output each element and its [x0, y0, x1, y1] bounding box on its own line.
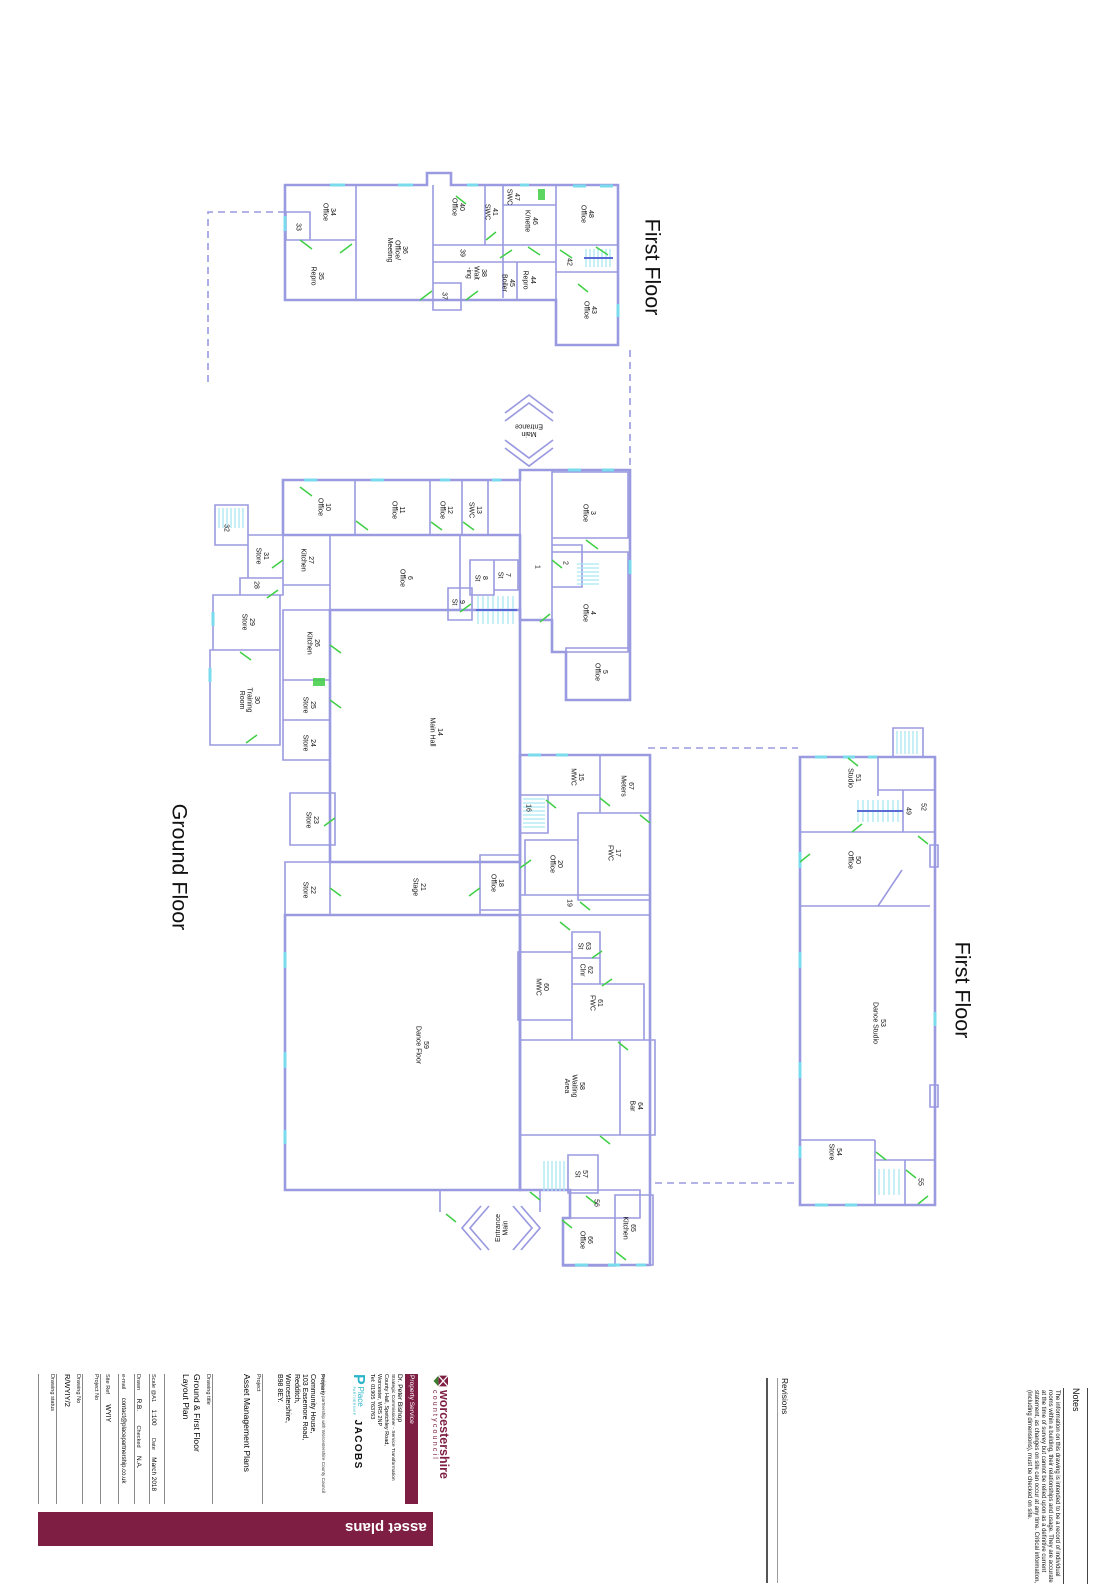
label-line: 7	[504, 573, 511, 577]
plan-geometry	[283, 470, 630, 700]
plan-geometry	[210, 505, 518, 745]
label-line: Clnr	[579, 964, 586, 978]
label-line: 44	[529, 276, 536, 284]
label-line: Boiler	[501, 274, 508, 293]
label-line: Repro	[522, 270, 529, 289]
fixtures-layer	[313, 189, 545, 686]
room-label-3: 3Office	[582, 504, 597, 522]
notes-title: Notes	[1071, 1388, 1081, 1412]
room-label-17: 17FWC	[607, 845, 622, 861]
label-line: 28	[252, 581, 259, 589]
room-label-12: 12Office	[439, 501, 454, 519]
plan-geometry	[283, 470, 630, 700]
room-labels-layer: 34Office3335Repro36Office/Meeting40Offic…	[168, 189, 975, 1249]
room-label-7: 7St	[497, 572, 512, 579]
label-line: 22	[309, 886, 316, 894]
label-line: Office	[583, 301, 590, 319]
floor-title-2: First Floor	[951, 942, 975, 1039]
plan-geometry	[520, 755, 650, 1265]
room-label-18: 18Office	[490, 874, 505, 892]
partnership-note: working in partnership with Worcestershi…	[321, 1374, 326, 1493]
room-label-37: 37	[440, 292, 447, 300]
room-label-58: 58WaitingArea	[563, 1074, 585, 1097]
stairs-layer	[219, 249, 917, 1195]
label-line: Office	[847, 851, 854, 869]
contact-role: Strategic Commissioner - Service Transfo…	[390, 1374, 395, 1504]
room-label-67: 67Meters	[620, 775, 635, 797]
label-line: Office	[322, 203, 329, 221]
label-line: 34	[329, 208, 336, 216]
asset-plans-banner: asset plans	[38, 1512, 433, 1546]
room-label-28: 28	[252, 581, 259, 589]
label-line: SWC	[484, 204, 491, 220]
label-line: Room	[238, 691, 245, 710]
drawing-no-value: R/WYIY/2	[63, 1374, 72, 1504]
label-line: 43	[590, 306, 597, 314]
label-line: St	[451, 599, 458, 606]
label-line: St	[474, 575, 481, 582]
label-line: 30	[253, 696, 260, 704]
label-line: 67	[627, 782, 634, 790]
label-line: 8	[481, 576, 488, 580]
contact-address: Worcester, WR5 2NP	[376, 1374, 382, 1504]
label-line: Store	[241, 614, 248, 631]
room-label-11: 11Office	[391, 501, 406, 519]
label-line: 46	[531, 217, 538, 225]
asset-plans-label: asset plans	[345, 1519, 427, 1536]
label-line: 31	[262, 552, 269, 560]
plan-geometry	[577, 564, 599, 584]
label-line: MWC	[570, 768, 577, 786]
label-line: Office/	[393, 240, 400, 260]
plan-geometry	[544, 1161, 564, 1191]
notes-rule	[1063, 1388, 1064, 1584]
room-label-57: 57St	[574, 1170, 589, 1178]
floor-title-1: Ground Floor	[168, 804, 192, 931]
room-label-35: 35Repro	[310, 266, 325, 285]
plan-geometry	[476, 258, 903, 811]
label-line: Ground Floor	[168, 804, 192, 931]
room-label-65: 65Kitchen	[622, 1216, 637, 1239]
label-line: 57	[581, 1170, 588, 1178]
label-line: Entrance	[515, 423, 543, 430]
label-line: 26	[313, 639, 320, 647]
label-line: 55	[916, 1178, 923, 1186]
plan-geometry	[208, 212, 798, 1183]
room-label-5: 5Office	[594, 663, 609, 681]
label-line: 59	[422, 1041, 429, 1049]
label-line: Office	[549, 855, 556, 873]
room-label-24: 24Store	[302, 735, 317, 752]
scale-value: 1:100	[150, 1410, 157, 1426]
notes-rule	[1087, 1388, 1088, 1584]
room-label-36: 36Office/Meeting	[386, 238, 408, 263]
drawing-title-value: Ground & First Floor	[192, 1374, 202, 1504]
room-label-2: 2	[561, 561, 568, 565]
label-line: 25	[309, 701, 316, 709]
label-line: Kitchen	[306, 631, 313, 654]
room-label-21: 21Stage	[412, 878, 427, 896]
label-line: 36	[401, 246, 408, 254]
label-line: 62	[586, 966, 593, 974]
label-line: 65	[629, 1224, 636, 1232]
label-line: 66	[586, 1236, 593, 1244]
room-label-10: 10Office	[317, 498, 332, 516]
label-line: 29	[248, 618, 255, 626]
plan-geometry	[879, 1169, 899, 1195]
room-label-52: 52	[919, 803, 926, 811]
field-project: Project Asset Management Plans	[212, 1374, 263, 1504]
label-line: 27	[307, 556, 314, 564]
label-line: 23	[312, 816, 319, 824]
label-line: 10	[324, 503, 331, 511]
room-label-34: 34Office	[322, 203, 337, 221]
field-drawing-title: Drawing title Ground & First Floor Layou…	[164, 1374, 213, 1504]
label-line: St	[577, 943, 584, 950]
floor-title-0: First Floor	[641, 219, 665, 316]
label-line: 45	[508, 279, 515, 287]
room-label-15: 15MWC	[570, 768, 585, 786]
room-label-38: 38Wait-ing	[465, 266, 487, 280]
field-drawing-no: Drawing No R/WYIY/2	[56, 1374, 83, 1504]
label-line: 4	[589, 611, 596, 615]
label-line: 24	[309, 739, 316, 747]
windows-layer	[210, 185, 935, 1265]
room-label-54: 54Store	[828, 1144, 843, 1161]
room-label-26: 26Kitchen	[306, 631, 321, 654]
label-line: Office	[580, 205, 587, 223]
label-line: Main Hall	[429, 717, 436, 747]
label-line: MWC	[535, 978, 542, 996]
label-line: Training	[245, 687, 252, 712]
label-line: 39	[458, 249, 465, 257]
label-line: 1	[533, 565, 540, 569]
label-line: 38	[480, 269, 487, 277]
label-line: 14	[436, 728, 443, 736]
label-line: 37	[440, 292, 447, 300]
room-label-22: 22Store	[302, 882, 317, 899]
label-line: -ing	[465, 267, 472, 279]
contact-name: Dr. Peter Bishop	[396, 1374, 403, 1504]
label-line: 52	[919, 803, 926, 811]
label-line: Bar	[629, 1101, 636, 1113]
field-label: Checked	[135, 1426, 141, 1448]
room-label-42: 42	[565, 258, 572, 266]
label-line: Repro	[310, 266, 317, 285]
room-label-55: 55	[916, 1178, 923, 1186]
label-line: Entrance	[495, 1214, 502, 1242]
label-line: 21	[419, 883, 426, 891]
room-label-32: 32	[222, 524, 229, 532]
label-line: Store	[305, 812, 312, 829]
room-label-9: 9St	[451, 599, 466, 606]
label-line: Office	[439, 501, 446, 519]
label-line: 2	[561, 561, 568, 565]
contact-tel: Tel: 01905 763763	[369, 1374, 375, 1504]
label-line: St	[497, 572, 504, 579]
room-label-30: 30TrainingRoom	[238, 687, 260, 712]
label-line: 48	[587, 210, 594, 218]
label-line: 58	[578, 1082, 585, 1090]
room-label-13: 13SWC	[468, 502, 483, 518]
room-label-29: 29Store	[241, 614, 256, 631]
label-line: 64	[636, 1102, 643, 1110]
checked-value: N.A.	[135, 1456, 142, 1468]
plan-geometry	[313, 189, 545, 686]
room-label-50: 50Office	[847, 851, 862, 869]
room-label-48: 48Office	[580, 205, 595, 223]
label-line: Office	[490, 874, 497, 892]
label-line: First Floor	[641, 219, 665, 316]
revisions-label: Revisions	[780, 1378, 790, 1414]
revisions-panel: Revisions	[781, 1378, 795, 1438]
label-line: Dance Studio	[872, 1002, 879, 1044]
contact-block: Dr. Peter Bishop Strategic Commissioner …	[365, 1374, 403, 1504]
label-line: 17	[614, 849, 621, 857]
label-line: 42	[565, 258, 572, 266]
label-line: 63	[584, 942, 591, 950]
label-line: 51	[854, 774, 861, 782]
label-line: Office	[391, 501, 398, 519]
plan-geometry	[800, 757, 935, 1205]
label-line: 12	[446, 506, 453, 514]
notes-title-wrap: Notes	[1068, 1388, 1086, 1428]
label-line: Meters	[620, 775, 627, 797]
plan-geometry	[285, 610, 520, 1190]
label-line: 13	[475, 506, 482, 514]
council-wordmark: worcestershire countycouncil	[431, 1390, 450, 1479]
label-line: 6	[406, 576, 413, 580]
label-line: Office	[451, 198, 458, 216]
email-value: contact@placepartnership.co.uk	[120, 1398, 126, 1484]
doors-layer	[240, 196, 928, 1260]
label-line: K/nette	[524, 210, 531, 232]
room-label-59: 59Dance Floor	[415, 1026, 430, 1065]
room-label-53: 53Dance Studio	[872, 1002, 887, 1044]
label-line: 49	[904, 807, 911, 815]
room-label-6: 6Office	[399, 569, 414, 587]
label-line: 47	[513, 193, 520, 201]
room-label-16: 16	[524, 804, 531, 812]
plan-geometry	[897, 731, 917, 754]
room-label-47: 47SWC	[506, 189, 521, 205]
label-line: Office	[594, 663, 601, 681]
label-line: 9	[458, 600, 465, 604]
walls-layer	[210, 173, 938, 1266]
label-line: Stage	[412, 878, 419, 896]
room-label-20: 20Office	[549, 855, 564, 873]
label-line: Office	[582, 504, 589, 522]
label-line: 11	[398, 506, 405, 513]
plan-geometry	[800, 758, 928, 1204]
room-label-39: 39	[458, 249, 465, 257]
drawn-value: R.B.	[135, 1399, 142, 1411]
stair-rails-layer	[476, 258, 903, 811]
room-label-44: 44Repro	[522, 270, 537, 289]
place-partnership-wordmark: Place PARTNERSHIP	[352, 1387, 364, 1416]
label-line: St	[574, 1171, 581, 1178]
label-line: Office	[399, 569, 406, 587]
logos-strip: P Place PARTNERSHIP JACOBS	[335, 1374, 365, 1504]
entrance-label-0: MainEntrance	[515, 423, 543, 438]
label-line: Store	[302, 735, 309, 752]
label-line: First Floor	[951, 942, 975, 1039]
label-line: Kitchen	[622, 1216, 629, 1239]
field-label: Date	[150, 1438, 156, 1450]
room-label-43: 43Office	[583, 301, 598, 319]
site-ref-value: WYIY	[104, 1404, 111, 1422]
label-line: FWC	[607, 845, 614, 861]
revisions-rule	[766, 1378, 768, 1583]
council-logo: worcestershire countycouncil	[420, 1374, 450, 1504]
label-line: 50	[854, 856, 861, 864]
entrance-label-1: EntranceMain	[495, 1214, 510, 1242]
label-line: 61	[596, 999, 603, 1007]
label-line: Office	[317, 498, 324, 516]
room-label-45: 45Boiler	[501, 274, 516, 293]
field-scale-date: Scale @A1 1:100 Date March 2018	[149, 1374, 165, 1504]
field-project-no: Project No	[82, 1374, 101, 1504]
contact-address: County Hall, Spetchley Road,	[383, 1374, 389, 1504]
drawing-title-value: Layout Plan	[181, 1374, 191, 1504]
label-line: 19	[565, 899, 572, 907]
label-line: 53	[879, 1019, 886, 1027]
label-line: SWC	[506, 189, 513, 205]
label-line: Dance Floor	[415, 1026, 422, 1065]
plan-geometry	[210, 470, 646, 1265]
label-line: SWC	[468, 502, 475, 518]
label-line: Store	[828, 1144, 835, 1161]
label-line: 33	[294, 223, 301, 231]
label-line: FWC	[589, 995, 596, 1011]
label-line: 15	[577, 773, 584, 781]
room-label-31: 31Store	[255, 548, 270, 565]
floor-plan-canvas: 34Office3335Repro36Office/Meeting40Offic…	[0, 0, 1120, 1370]
plan-geometry	[283, 610, 520, 915]
field-label: e-mail	[120, 1374, 126, 1389]
room-label-62: 62Clnr	[579, 964, 594, 978]
room-label-1: 1	[533, 565, 540, 569]
room-label-8: 8St	[474, 575, 489, 582]
room-label-64: 64Bar	[629, 1101, 644, 1113]
label-line: 41	[491, 208, 498, 216]
council-crest-icon	[433, 1374, 448, 1388]
plan-geometry	[800, 757, 935, 1205]
field-label: Site Ref	[104, 1374, 110, 1394]
room-label-51: 51Studio	[847, 768, 862, 788]
label-line: 35	[317, 272, 324, 280]
field-label: Drawn	[135, 1374, 141, 1390]
label-line: 20	[556, 860, 563, 868]
notes-body: The information on this drawing is inten…	[1025, 1390, 1060, 1587]
label-line: 56	[592, 1199, 599, 1207]
label-line: 16	[524, 804, 531, 812]
room-label-33: 33	[294, 223, 301, 231]
property-address: Community House, 103 Easemore Road, Redd…	[275, 1374, 316, 1504]
drawing-sheet: { "floorplan": { "colors": {"wall": "#9a…	[0, 0, 1120, 1585]
label-line: 54	[835, 1148, 842, 1156]
label-line: Store	[255, 548, 262, 565]
room-label-66: 66Office	[579, 1231, 594, 1249]
plan-geometry	[800, 728, 938, 1205]
label-line: Store	[302, 882, 309, 899]
label-line: 32	[222, 524, 229, 532]
label-line: Store	[302, 697, 309, 714]
label-line: Kitchen	[300, 548, 307, 571]
date-value: March 2018	[150, 1457, 157, 1491]
boundary-dashed-layer	[208, 212, 798, 1183]
label-line: Office	[579, 1231, 586, 1249]
label-line: Waiting	[570, 1074, 577, 1097]
label-line: 60	[542, 983, 549, 991]
property-service-label: Property Service	[408, 1374, 418, 1504]
room-label-4: 4Office	[582, 604, 597, 622]
place-partnership-logo-icon: P	[351, 1374, 365, 1385]
room-label-61: 61FWC	[589, 995, 604, 1011]
room-label-19: 19	[565, 899, 572, 907]
label-line: 18	[497, 879, 504, 887]
label-line: Wait	[472, 266, 479, 280]
label-line: 40	[458, 203, 465, 211]
label-line: Main	[502, 1220, 509, 1235]
label-line: 5	[601, 670, 608, 674]
label-line: Studio	[847, 768, 854, 788]
field-drawing-status: Drawing status	[38, 1374, 57, 1504]
room-label-56: 56	[592, 1199, 599, 1207]
partnership-note-strip: working in partnership with Worcestershi…	[326, 1374, 335, 1504]
label-line: Main	[521, 430, 536, 437]
field-label: Scale @A1	[150, 1374, 156, 1402]
room-label-49: 49	[904, 807, 911, 815]
room-label-63: 63St	[577, 942, 592, 950]
label-line: 3	[589, 511, 596, 515]
project-value: Asset Management Plans	[242, 1374, 252, 1504]
notes-body-wrap: The information on this drawing is inten…	[1012, 1390, 1060, 1587]
room-label-41: 41SWC	[484, 204, 499, 220]
room-label-27: 27Kitchen	[300, 548, 315, 571]
room-label-14: 14Main Hall	[429, 717, 444, 747]
room-label-25: 25Store	[302, 697, 317, 714]
room-label-60: 60MWC	[535, 978, 550, 996]
room-label-23: 23Store	[305, 812, 320, 829]
property-service-bar: Property Service	[405, 1374, 418, 1504]
label-line: Area	[563, 1079, 570, 1094]
label-line: Meeting	[386, 238, 393, 263]
jacobs-logo: JACOBS	[353, 1420, 364, 1470]
room-label-46: 46K/nette	[524, 210, 539, 232]
label-line: Office	[582, 604, 589, 622]
